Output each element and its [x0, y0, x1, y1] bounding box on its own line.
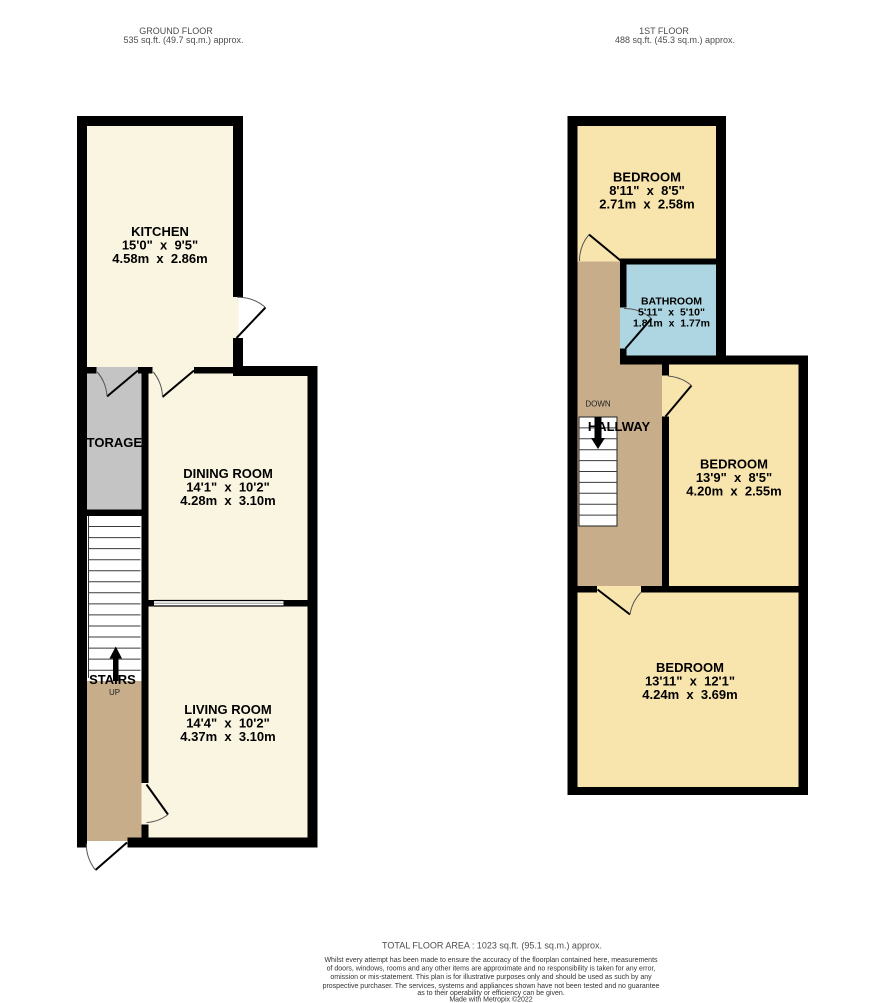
svg-text:TOTAL FLOOR AREA : 1023 sq.ft.: TOTAL FLOOR AREA : 1023 sq.ft. (95.1 sq.… — [382, 941, 602, 951]
svg-text:omission or mis-statement. Thi: omission or mis-statement. This plan is … — [330, 974, 652, 981]
svg-text:STAIRS: STAIRS — [89, 672, 136, 687]
svg-text:UP: UP — [109, 688, 120, 697]
svg-text:4.37m x 3.10m: 4.37m x 3.10m — [180, 729, 275, 744]
svg-text:DOWN: DOWN — [585, 400, 611, 409]
svg-text:2.71m x 2.58m: 2.71m x 2.58m — [599, 197, 694, 212]
svg-text:HALLWAY: HALLWAY — [588, 419, 651, 434]
svg-text:4.58m x 2.86m: 4.58m x 2.86m — [112, 251, 207, 266]
svg-text:535 sq.ft. (49.7 sq.m.) approx: 535 sq.ft. (49.7 sq.m.) approx. — [123, 35, 243, 45]
svg-text:Whilst every attempt has been: Whilst every attempt has been made to en… — [324, 957, 658, 964]
svg-text:4.28m x 3.10m: 4.28m x 3.10m — [180, 493, 275, 508]
svg-text:4.20m x 2.55m: 4.20m x 2.55m — [686, 484, 781, 499]
svg-text:STORAGE: STORAGE — [78, 435, 142, 450]
svg-text:488 sq.ft. (45.3 sq.m.) approx: 488 sq.ft. (45.3 sq.m.) approx. — [615, 35, 735, 45]
svg-text:4.24m x 3.69m: 4.24m x 3.69m — [642, 687, 737, 702]
svg-text:of doors, windows, rooms and a: of doors, windows, rooms and any other i… — [327, 966, 656, 973]
svg-text:1.81m x 1.77m: 1.81m x 1.77m — [633, 318, 710, 330]
svg-text:Made with Metropix ©2022: Made with Metropix ©2022 — [449, 995, 532, 1003]
svg-text:prospective purchaser. The ser: prospective purchaser. The services, sys… — [323, 983, 660, 990]
